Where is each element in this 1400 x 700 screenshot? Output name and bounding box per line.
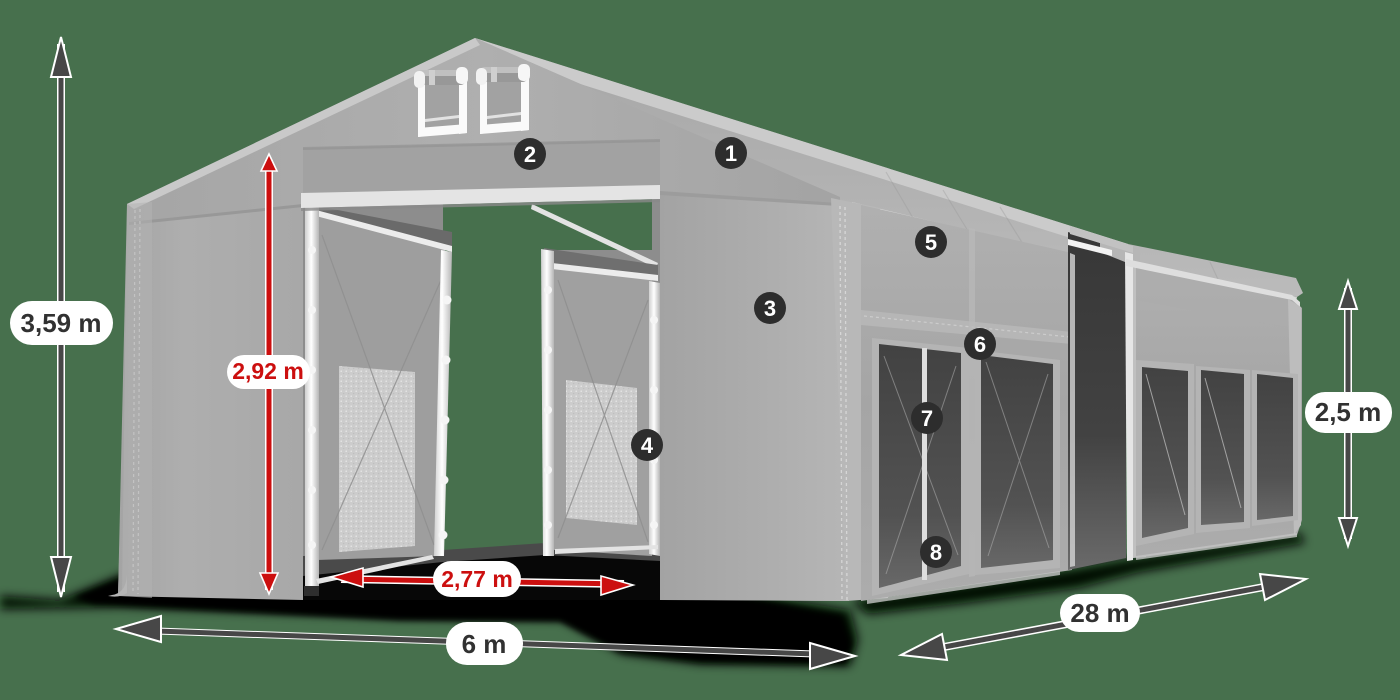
svg-text:3: 3: [764, 296, 776, 321]
svg-text:2: 2: [524, 142, 536, 167]
svg-text:1: 1: [725, 141, 737, 166]
svg-text:28 m: 28 m: [1070, 598, 1129, 628]
svg-text:3,59 m: 3,59 m: [21, 308, 102, 338]
svg-text:2,92 m: 2,92 m: [232, 358, 304, 384]
svg-text:6: 6: [974, 332, 986, 357]
svg-text:8: 8: [930, 540, 942, 565]
svg-text:2,77 m: 2,77 m: [441, 566, 513, 592]
svg-text:4: 4: [641, 433, 654, 458]
svg-text:2,5 m: 2,5 m: [1315, 397, 1382, 427]
svg-text:7: 7: [921, 406, 933, 431]
svg-text:5: 5: [925, 230, 937, 255]
svg-text:6 m: 6 m: [462, 629, 507, 659]
